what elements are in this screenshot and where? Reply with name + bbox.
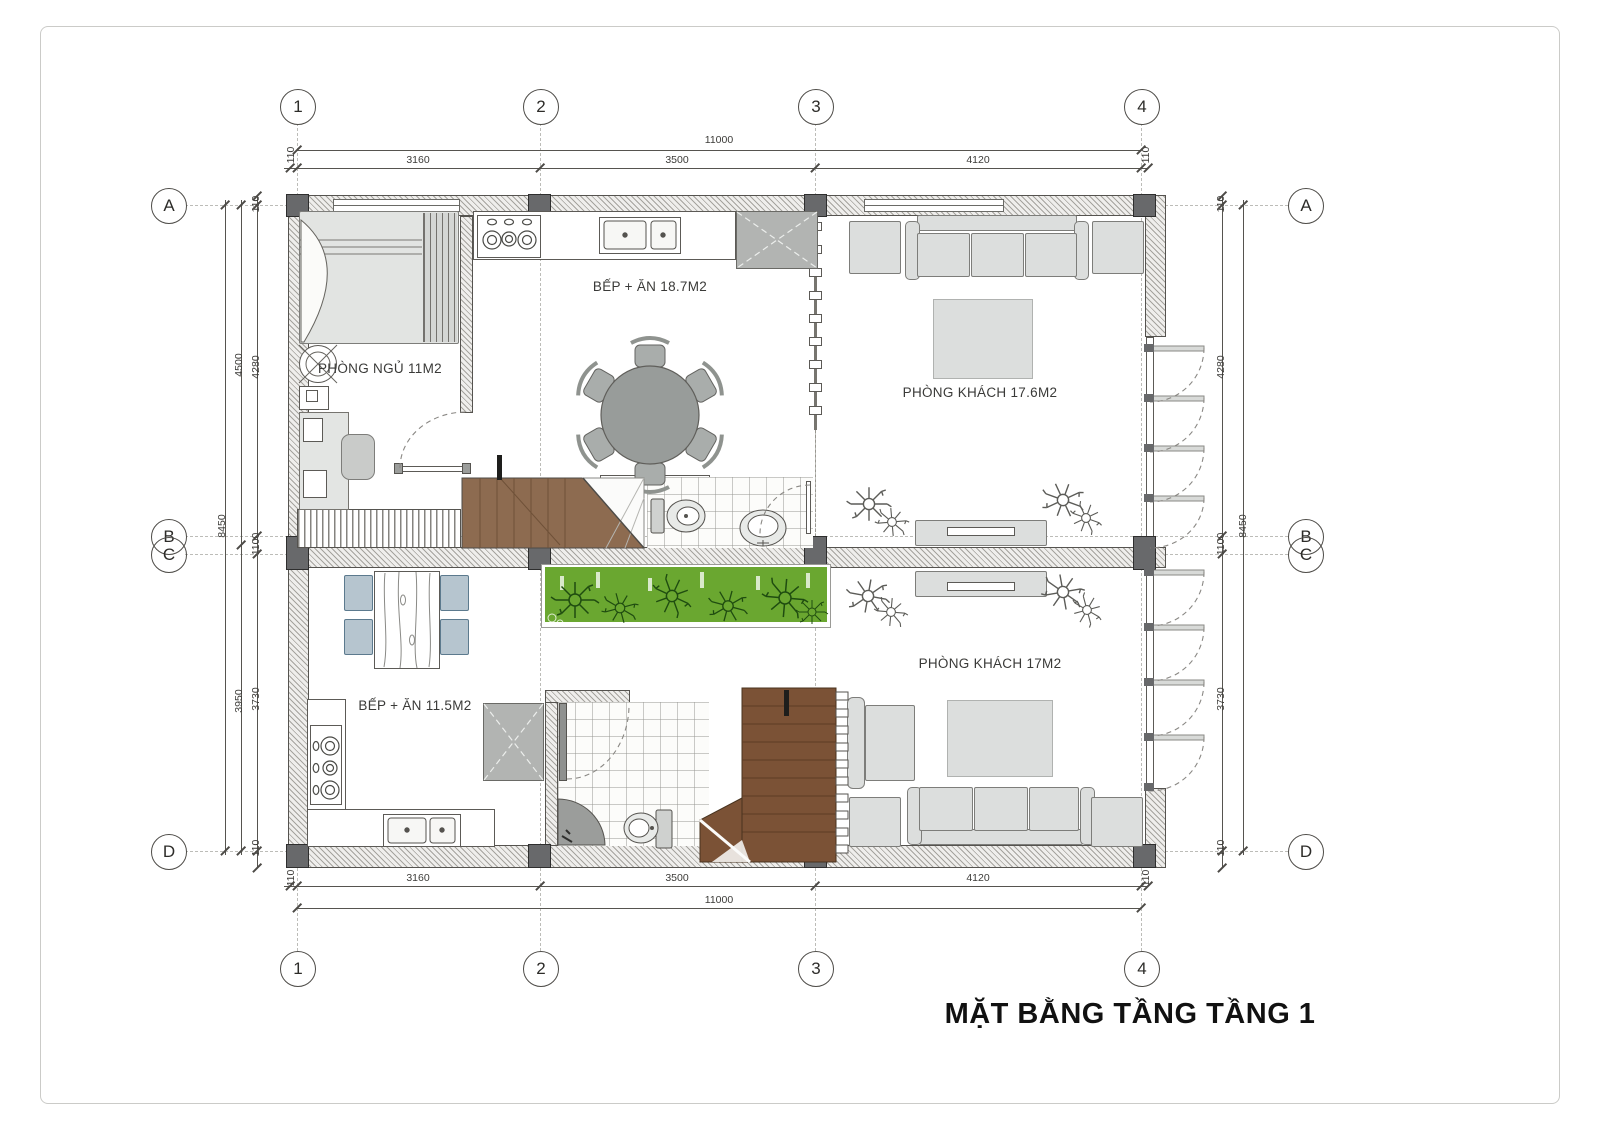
grid-label: C bbox=[163, 545, 175, 565]
grid-bubble-4-top: 4 bbox=[1124, 89, 1160, 125]
grid-bubble-1-top: 1 bbox=[280, 89, 316, 125]
dim-line bbox=[241, 200, 242, 855]
grid-bubble-C-left: C bbox=[151, 537, 187, 573]
sink1-bowls bbox=[604, 221, 676, 249]
grid-label: A bbox=[163, 196, 174, 216]
dim-text: 8450 bbox=[1237, 496, 1249, 556]
table2-grain bbox=[384, 572, 430, 668]
dim-text: 1100 bbox=[1215, 514, 1227, 574]
dim-text: 3160 bbox=[378, 154, 458, 166]
grid-label: 4 bbox=[1137, 959, 1146, 979]
dim-text: 3730 bbox=[1215, 669, 1227, 729]
dim-text: 4280 bbox=[250, 337, 262, 397]
bathroom2-fixtures bbox=[558, 799, 672, 848]
grid-bubble-3-bottom: 3 bbox=[798, 951, 834, 987]
grid-label: 1 bbox=[293, 959, 302, 979]
room-label-living2: PHÒNG KHÁCH 17M2 bbox=[870, 656, 1110, 671]
dim-text: 3500 bbox=[637, 872, 717, 884]
dim-text: 110 bbox=[285, 145, 297, 165]
grid-bubble-A-right: A bbox=[1288, 188, 1324, 224]
stove2-burners bbox=[313, 737, 339, 799]
stairs-lower bbox=[700, 688, 848, 862]
dim-text: 1100 bbox=[250, 514, 262, 574]
grid-label: 4 bbox=[1137, 97, 1146, 117]
grid-label: 1 bbox=[293, 97, 302, 117]
grid-bubble-A-left: A bbox=[151, 188, 187, 224]
room-label-bedroom: PHÒNG NGỦ 11M2 bbox=[275, 361, 485, 376]
grid-label: D bbox=[1300, 842, 1312, 862]
dining-table1 bbox=[574, 338, 726, 492]
bathroom1-fixtures bbox=[651, 499, 786, 546]
dim-text: 11000 bbox=[679, 134, 759, 146]
grid-bubble-C-right: C bbox=[1288, 537, 1324, 573]
grid-bubble-1-bottom: 1 bbox=[280, 951, 316, 987]
grid-label: D bbox=[163, 842, 175, 862]
dim-line bbox=[297, 908, 1141, 909]
grid-bubble-2-bottom: 2 bbox=[523, 951, 559, 987]
dim-text: 4120 bbox=[938, 154, 1018, 166]
dim-text: 4500 bbox=[233, 335, 245, 395]
dim-line bbox=[284, 168, 1148, 169]
dim-line bbox=[297, 150, 1141, 151]
planter-plants bbox=[548, 568, 828, 630]
grid-label: 2 bbox=[536, 959, 545, 979]
stairs-upper bbox=[462, 455, 644, 548]
stove1-burners bbox=[483, 219, 536, 249]
floor-plan-sheet: 11000 110 3160 3500 4120 110 110 3160 35… bbox=[0, 0, 1600, 1131]
room-label-living1: PHÒNG KHÁCH 17.6M2 bbox=[860, 385, 1100, 400]
sink2-bowls bbox=[388, 818, 455, 843]
grid-label: 2 bbox=[536, 97, 545, 117]
grid-label: 3 bbox=[811, 959, 820, 979]
bed-detail bbox=[299, 220, 422, 383]
grid-bubble-2-top: 2 bbox=[523, 89, 559, 125]
dim-line bbox=[284, 886, 1148, 887]
dim-text: 11000 bbox=[679, 894, 759, 906]
room-label-kitchen2: BẾP + ĂN 11.5M2 bbox=[310, 698, 520, 713]
grid-label: A bbox=[1300, 196, 1311, 216]
grid-bubble-4-bottom: 4 bbox=[1124, 951, 1160, 987]
dim-text: 8450 bbox=[216, 496, 228, 556]
folding-doors[interactable] bbox=[1144, 344, 1204, 791]
dim-text: 3500 bbox=[637, 154, 717, 166]
dim-text: 3950 bbox=[233, 671, 245, 731]
grid-bubble-3-top: 3 bbox=[798, 89, 834, 125]
grid-label: C bbox=[1300, 545, 1312, 565]
grid-bubble-D-left: D bbox=[151, 834, 187, 870]
dim-text: 3160 bbox=[378, 872, 458, 884]
drawing-title: MẶT BẰNG TẦNG TẦNG 1 bbox=[930, 998, 1330, 1031]
grid-label: 3 bbox=[811, 97, 820, 117]
room-label-kitchen1: BẾP + ĂN 18.7M2 bbox=[545, 279, 755, 294]
dim-text: 3730 bbox=[250, 669, 262, 729]
decor-plants bbox=[843, 477, 1105, 634]
grid-bubble-D-right: D bbox=[1288, 834, 1324, 870]
dim-text: 4280 bbox=[1215, 337, 1227, 397]
dim-text: 4120 bbox=[938, 872, 1018, 884]
